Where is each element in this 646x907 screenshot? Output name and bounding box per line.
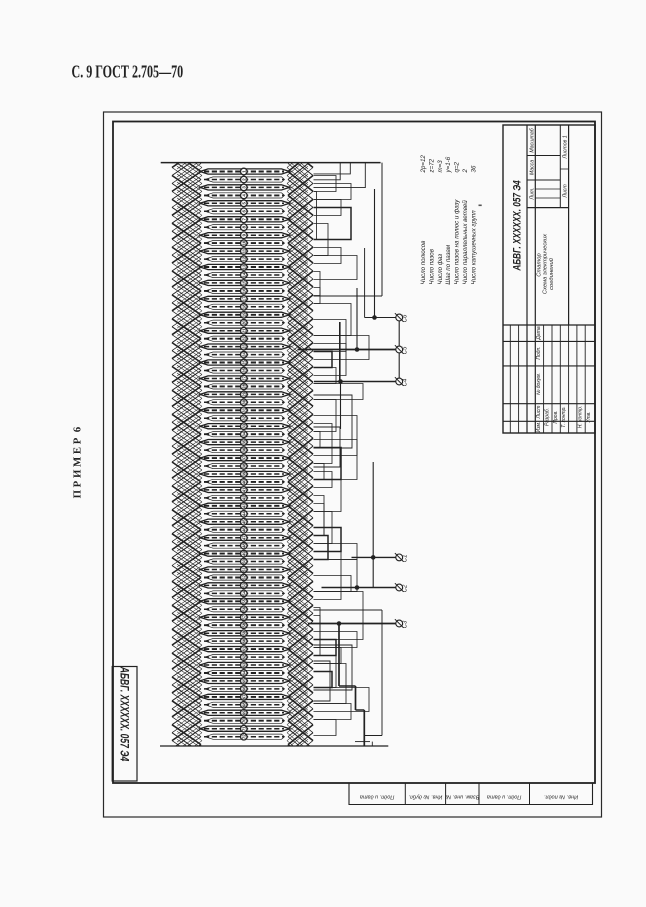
- svg-text:Число фаз: Число фаз: [437, 254, 444, 285]
- svg-text:64: 64: [241, 670, 246, 675]
- svg-text:65: 65: [241, 678, 246, 683]
- svg-text:Число катушечных групп: Число катушечных групп: [470, 210, 477, 285]
- svg-text:Число параллельных ветвей: Число параллельных ветвей: [462, 200, 469, 285]
- svg-text:24: 24: [241, 352, 246, 357]
- svg-text:Н. контр.: Н. контр.: [578, 406, 584, 429]
- svg-text:Разраб.: Разраб.: [545, 408, 551, 426]
- svg-text:16: 16: [241, 288, 246, 293]
- svg-text:С. 9 ГОСТ 2.705—70: С. 9 ГОСТ 2.705—70: [72, 64, 184, 83]
- svg-text:41: 41: [241, 487, 246, 492]
- svg-text:2p=12: 2p=12: [420, 155, 427, 174]
- svg-text:54: 54: [241, 590, 246, 595]
- svg-text:q=2: q=2: [454, 161, 461, 172]
- svg-text:66: 66: [241, 686, 246, 691]
- svg-text:АБВГ. ХХХХХХ. 057 Э4: АБВГ. ХХХХХХ. 057 Э4: [117, 666, 129, 762]
- svg-text:10: 10: [241, 240, 246, 245]
- svg-text:П Р И М Е Р 6: П Р И М Е Р 6: [73, 427, 84, 499]
- svg-text:Подп.: Подп.: [536, 346, 542, 359]
- svg-text:Число полюсов: Число полюсов: [420, 240, 427, 285]
- svg-text:34: 34: [241, 431, 246, 436]
- svg-text:y=1-6: y=1-6: [445, 156, 452, 173]
- svg-text:58: 58: [241, 622, 246, 627]
- svg-text:29: 29: [241, 391, 246, 396]
- svg-text:13: 13: [241, 264, 246, 269]
- svg-text:z=72: z=72: [428, 158, 435, 173]
- svg-text:Листов 1: Листов 1: [563, 135, 569, 159]
- svg-text:11: 11: [241, 248, 246, 253]
- svg-text:57: 57: [241, 614, 246, 619]
- svg-text:71: 71: [241, 726, 246, 731]
- svg-text:61: 61: [241, 646, 246, 651]
- svg-text:47: 47: [241, 535, 246, 540]
- svg-text:С1: С1: [403, 555, 409, 563]
- svg-text:m=3: m=3: [437, 160, 444, 173]
- svg-text:42: 42: [241, 495, 246, 500]
- svg-text:60: 60: [241, 638, 246, 643]
- svg-text:С5: С5: [403, 346, 409, 354]
- svg-text:19: 19: [241, 312, 246, 317]
- svg-text:53: 53: [241, 582, 246, 587]
- svg-text:50: 50: [241, 559, 246, 564]
- svg-text:31: 31: [241, 407, 246, 412]
- svg-text:56: 56: [241, 606, 246, 611]
- svg-text:Лист: Лист: [536, 406, 542, 420]
- svg-text:Инв. № подл.: Инв. № подл.: [544, 794, 578, 800]
- svg-text:37: 37: [241, 455, 246, 460]
- svg-text:Взам. инв. №: Взам. инв. №: [445, 794, 479, 800]
- svg-text:20: 20: [241, 320, 246, 325]
- svg-text:33: 33: [241, 423, 246, 428]
- svg-text:48: 48: [241, 543, 246, 548]
- svg-text:62: 62: [241, 654, 246, 659]
- svg-text:38: 38: [241, 463, 246, 468]
- svg-text:Число пазов: Число пазов: [428, 248, 435, 284]
- svg-text:55: 55: [241, 598, 246, 603]
- svg-text:Дата: Дата: [536, 326, 542, 340]
- svg-text:22: 22: [241, 336, 246, 341]
- svg-text:17: 17: [241, 296, 246, 301]
- svg-text:Статор: Статор: [537, 253, 543, 277]
- svg-text:соединений: соединений: [548, 257, 555, 290]
- svg-text:Подп. и дата: Подп. и дата: [360, 794, 394, 800]
- svg-text:Изм.: Изм.: [536, 422, 542, 433]
- svg-text:12: 12: [241, 256, 246, 261]
- svg-text:23: 23: [241, 344, 246, 349]
- svg-text:С3: С3: [403, 620, 409, 628]
- svg-text:С2: С2: [403, 584, 409, 592]
- svg-text:49: 49: [241, 551, 246, 556]
- svg-text:67: 67: [241, 694, 246, 699]
- svg-text:18: 18: [241, 304, 246, 309]
- svg-text:№ докум.: № докум.: [536, 373, 542, 395]
- svg-text:Подп. и дата: Подп. и дата: [487, 794, 521, 800]
- svg-text:36: 36: [241, 447, 246, 452]
- svg-text:68: 68: [241, 702, 246, 707]
- svg-text:Шаг по пазам: Шаг по пазам: [445, 244, 452, 284]
- svg-text:Инв. № дубл.: Инв. № дубл.: [409, 794, 443, 800]
- svg-text:39: 39: [241, 471, 246, 476]
- svg-text:Т. контр.: Т. контр.: [561, 406, 567, 428]
- svg-text:С6: С6: [403, 314, 409, 322]
- svg-text:Пров.: Пров.: [553, 410, 559, 423]
- svg-text:26: 26: [241, 368, 246, 373]
- svg-text:15: 15: [241, 280, 246, 285]
- svg-text:35: 35: [241, 439, 246, 444]
- svg-text:14: 14: [241, 272, 246, 277]
- svg-text:63: 63: [241, 662, 246, 667]
- svg-text:70: 70: [241, 718, 246, 723]
- svg-text:40: 40: [241, 479, 246, 484]
- svg-text:51: 51: [241, 567, 246, 572]
- svg-text:46: 46: [241, 527, 246, 532]
- svg-text:Число пазов на полюс и фазу: Число пазов на полюс и фазу: [454, 199, 461, 285]
- svg-text:69: 69: [241, 710, 246, 715]
- svg-text:Лит.: Лит.: [530, 187, 536, 200]
- svg-text:72: 72: [241, 734, 246, 739]
- svg-text:Утв.: Утв.: [586, 411, 592, 422]
- svg-text:59: 59: [241, 630, 246, 635]
- svg-text:44: 44: [241, 511, 246, 516]
- svg-text:Лист: Лист: [563, 184, 569, 199]
- svg-text:45: 45: [241, 519, 246, 524]
- svg-text:АБВГ. ХХХХХХ. 057 Э4: АБВГ. ХХХХХХ. 057 Э4: [511, 180, 523, 272]
- svg-text:Масштаб: Масштаб: [530, 127, 536, 152]
- svg-text:52: 52: [241, 575, 246, 580]
- svg-text:43: 43: [241, 503, 246, 508]
- svg-text:Масса: Масса: [530, 160, 536, 175]
- svg-text:30: 30: [241, 399, 246, 404]
- svg-text:25: 25: [241, 360, 246, 365]
- svg-text:С4: С4: [403, 378, 409, 386]
- svg-text:Схема электрических: Схема электрических: [543, 233, 549, 294]
- svg-text:2: 2: [462, 169, 469, 174]
- svg-text:27: 27: [241, 376, 246, 381]
- svg-text:32: 32: [241, 415, 246, 420]
- svg-text:28: 28: [241, 383, 246, 388]
- svg-text:36: 36: [470, 165, 477, 172]
- svg-text:21: 21: [241, 328, 246, 333]
